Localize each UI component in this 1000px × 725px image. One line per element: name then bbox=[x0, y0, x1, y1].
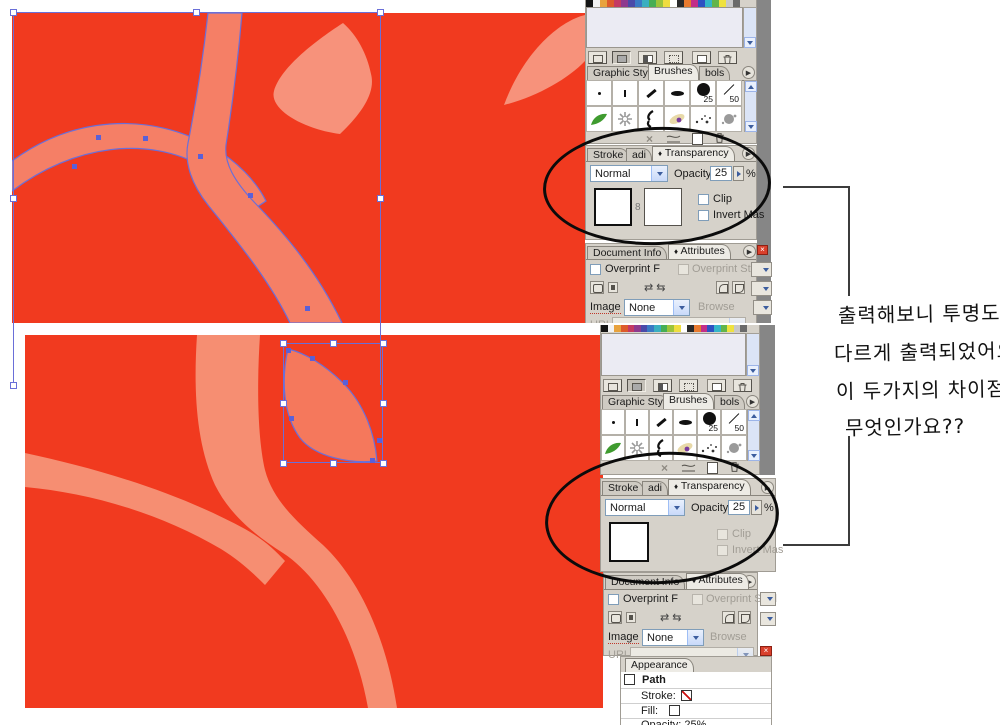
ellipse-icon bbox=[679, 420, 692, 425]
swatches-strip[interactable] bbox=[601, 325, 747, 333]
appearance-item-label: Path bbox=[642, 674, 666, 686]
close-button-fragment[interactable]: × bbox=[757, 245, 768, 255]
opacity-value-label: Opacity: 25% bbox=[641, 719, 706, 725]
anchor-point[interactable] bbox=[248, 193, 253, 198]
color-swatch[interactable] bbox=[621, 325, 628, 332]
fill-label: Fill: bbox=[641, 705, 658, 717]
image-map-value: None bbox=[629, 302, 655, 314]
selection-handle[interactable] bbox=[280, 460, 287, 467]
appearance-panel: Appearance Path Stroke: Fill: Opacity: 2… bbox=[620, 656, 772, 725]
brush-grid: 25 50 bbox=[586, 80, 744, 132]
brush-splat[interactable] bbox=[716, 106, 742, 132]
color-swatch[interactable] bbox=[705, 0, 712, 7]
panel-button-5[interactable] bbox=[707, 379, 726, 392]
corner-button-2[interactable] bbox=[738, 611, 751, 624]
selection-handle[interactable] bbox=[380, 400, 387, 407]
selection-handle[interactable] bbox=[380, 340, 387, 347]
scroll-down-button[interactable] bbox=[744, 37, 756, 48]
panel-button-5[interactable] bbox=[692, 51, 711, 64]
color-swatch[interactable] bbox=[661, 325, 668, 332]
corner-button-1[interactable] bbox=[716, 281, 729, 294]
appearance-fill-row[interactable]: Fill: bbox=[621, 704, 771, 719]
browser-button[interactable]: Browse bbox=[698, 301, 735, 313]
color-swatch[interactable] bbox=[714, 325, 721, 332]
brush-dash[interactable] bbox=[612, 80, 638, 106]
styles-list[interactable] bbox=[601, 333, 746, 376]
color-swatch[interactable] bbox=[674, 325, 681, 332]
brush-ellipse[interactable] bbox=[673, 409, 697, 435]
brush-scrollbar[interactable] bbox=[744, 80, 757, 132]
dropdown-button[interactable] bbox=[673, 300, 689, 315]
image-map-select[interactable]: None bbox=[624, 299, 690, 316]
image-map-value: None bbox=[647, 632, 673, 644]
brushes-tabbar: Graphic Sty Brushes bols ▶ bbox=[601, 393, 761, 410]
diagonal-stroke-icon bbox=[656, 417, 666, 426]
splat-icon bbox=[720, 111, 738, 127]
brush-ellipse[interactable] bbox=[664, 80, 690, 106]
new-item-icon bbox=[697, 55, 707, 63]
annotation-line-2: 다르게 출력되었어요.. bbox=[834, 334, 1000, 366]
appearance-stroke-row[interactable]: Stroke: bbox=[621, 689, 771, 704]
style-icon bbox=[617, 55, 627, 63]
thin-stroke-icon bbox=[724, 84, 735, 95]
color-swatch[interactable] bbox=[726, 0, 733, 7]
leaf-selection-box[interactable] bbox=[283, 343, 383, 463]
overprint-fill-checkbox[interactable] bbox=[590, 264, 601, 275]
tab-graphic-styles[interactable]: Graphic Sty bbox=[602, 395, 669, 409]
brush-scatter[interactable] bbox=[690, 106, 716, 132]
color-swatch[interactable] bbox=[593, 0, 600, 7]
arrow-down-icon bbox=[751, 454, 757, 458]
color-swatch[interactable] bbox=[649, 0, 656, 7]
anchor-point[interactable] bbox=[289, 416, 294, 421]
tab-document-info[interactable]: Document Info bbox=[587, 246, 667, 259]
color-swatch[interactable] bbox=[601, 325, 608, 332]
scroll-up-button[interactable] bbox=[748, 410, 760, 421]
annotation-line-4: 무엇인가요?? bbox=[845, 410, 966, 441]
color-swatch[interactable] bbox=[733, 0, 740, 7]
panel-button-6[interactable] bbox=[733, 379, 752, 392]
anchor-point[interactable] bbox=[310, 356, 315, 361]
palette-fragment bbox=[751, 262, 772, 277]
browser-button[interactable]: Browse bbox=[710, 631, 747, 643]
scroll-down-button[interactable] bbox=[748, 450, 760, 461]
half-icon bbox=[658, 383, 668, 391]
chevron-down-icon bbox=[767, 617, 773, 621]
color-swatch[interactable] bbox=[635, 0, 642, 7]
color-swatch[interactable] bbox=[667, 325, 674, 332]
panel-button-3[interactable] bbox=[638, 51, 657, 64]
color-swatch[interactable] bbox=[719, 0, 726, 7]
grid-icon bbox=[669, 55, 679, 63]
show-center-button[interactable] bbox=[608, 611, 622, 624]
brushes-tabbar: Graphic Sty Brushes bols ▶ bbox=[586, 64, 758, 81]
panel-button-1[interactable] bbox=[603, 379, 622, 392]
close-button-fragment[interactable]: × bbox=[760, 646, 772, 656]
tab-attributes[interactable]: ♦ Attributes bbox=[668, 244, 731, 259]
anchor-point[interactable] bbox=[96, 135, 101, 140]
color-swatch[interactable] bbox=[600, 0, 607, 7]
anchor-point[interactable] bbox=[370, 458, 375, 463]
color-swatch[interactable] bbox=[684, 0, 691, 7]
color-swatch[interactable] bbox=[607, 0, 614, 7]
anchor-point[interactable] bbox=[377, 438, 382, 443]
color-swatch[interactable] bbox=[740, 325, 747, 332]
arrow-down-icon bbox=[747, 41, 753, 45]
palette-fragment bbox=[760, 612, 776, 626]
selection-handle[interactable] bbox=[330, 340, 337, 347]
arrow-down-icon bbox=[750, 369, 756, 373]
overprint-stroke-checkbox[interactable] bbox=[692, 594, 703, 605]
color-swatch[interactable] bbox=[634, 325, 641, 332]
color-swatch[interactable] bbox=[608, 325, 615, 332]
color-swatch[interactable] bbox=[642, 0, 649, 7]
arrow-up-icon bbox=[748, 85, 754, 89]
palette-fragment bbox=[760, 592, 776, 606]
brush-dash[interactable] bbox=[625, 409, 649, 435]
arrow-down-icon bbox=[748, 125, 754, 129]
dot-icon bbox=[612, 421, 615, 424]
flyout-icon: ▶ bbox=[750, 398, 755, 406]
brush-size-label: 25 bbox=[704, 94, 713, 104]
bracket-vertical-upper bbox=[848, 186, 850, 296]
new-item-icon bbox=[712, 383, 722, 391]
show-center-button[interactable] bbox=[590, 281, 604, 294]
charcoal-icon bbox=[644, 110, 658, 128]
list-scrollbar[interactable] bbox=[746, 333, 760, 376]
selection-handle[interactable] bbox=[380, 460, 387, 467]
color-swatch[interactable] bbox=[647, 325, 654, 332]
selection-handle[interactable] bbox=[10, 382, 17, 389]
color-swatch[interactable] bbox=[721, 325, 728, 332]
chevron-down-icon bbox=[693, 636, 699, 640]
panel-menu-button[interactable]: ▶ bbox=[746, 395, 759, 408]
grid-icon bbox=[684, 383, 694, 391]
dash-icon bbox=[624, 90, 626, 97]
color-swatch[interactable] bbox=[654, 325, 661, 332]
stroke-label: Stroke: bbox=[641, 690, 676, 702]
swatches-strip[interactable] bbox=[586, 0, 744, 7]
tab-appearance[interactable]: Appearance bbox=[625, 658, 694, 672]
corner-button-1[interactable] bbox=[722, 611, 735, 624]
dropdown-button[interactable] bbox=[687, 630, 703, 645]
dot-icon bbox=[598, 92, 601, 95]
artwork-top bbox=[12, 13, 585, 323]
color-swatch[interactable] bbox=[628, 0, 635, 7]
attributes-tabbar: Document Info ♦ Attributes ▶ bbox=[586, 244, 756, 260]
anchor-point[interactable] bbox=[72, 164, 77, 169]
bracket-bottom-tick bbox=[783, 544, 849, 546]
image-map-select[interactable]: None bbox=[642, 629, 704, 646]
chevron-down-icon bbox=[763, 306, 769, 310]
chevron-down-icon bbox=[763, 287, 769, 291]
path-swatch bbox=[624, 674, 635, 685]
layers-icon bbox=[608, 383, 618, 391]
panel-button-2[interactable] bbox=[612, 51, 631, 64]
hide-center-button[interactable] bbox=[626, 612, 636, 623]
selection-handle[interactable] bbox=[377, 195, 384, 202]
appearance-tabbar: Appearance bbox=[621, 657, 771, 673]
tab-brushes[interactable]: Brushes bbox=[663, 393, 714, 409]
panel-button-3[interactable] bbox=[653, 379, 672, 392]
brush-50pt[interactable]: 50 bbox=[721, 409, 747, 435]
panel-button-1[interactable] bbox=[588, 51, 607, 64]
selection-handle[interactable] bbox=[10, 195, 17, 202]
arrow-up-icon bbox=[751, 414, 757, 418]
attributes-panel-top: Document Info ♦ Attributes ▶ Overprint F… bbox=[585, 243, 757, 323]
selection-handle[interactable] bbox=[10, 9, 17, 16]
corner-button-2[interactable] bbox=[732, 281, 745, 294]
url-select[interactable] bbox=[612, 317, 746, 323]
color-swatch[interactable] bbox=[663, 0, 670, 7]
overprint-fill-label: Overprint F bbox=[605, 263, 660, 275]
style-icon bbox=[632, 383, 642, 391]
layers-icon bbox=[593, 55, 603, 63]
flyout-icon: ▶ bbox=[747, 248, 752, 256]
anchor-point[interactable] bbox=[286, 348, 291, 353]
brush-50pt[interactable]: 50 bbox=[716, 80, 742, 106]
brush-scrollbar[interactable] bbox=[747, 409, 760, 461]
attributes-panel-bottom: Document Info ♦ Attributes ▶ Overprint F… bbox=[603, 572, 758, 656]
tab-brushes[interactable]: Brushes bbox=[648, 64, 699, 80]
brush-size-label: 25 bbox=[709, 423, 718, 433]
selection-handle[interactable] bbox=[280, 400, 287, 407]
annotation-line-1: 출력해보니 투명도가 bbox=[838, 296, 1000, 328]
bracket-vertical-lower bbox=[848, 436, 850, 546]
stroke-none-swatch bbox=[681, 690, 692, 701]
color-swatch[interactable] bbox=[677, 0, 684, 7]
brush-dot[interactable] bbox=[586, 80, 612, 106]
chevron-down-icon bbox=[763, 268, 769, 272]
hide-center-button[interactable] bbox=[608, 282, 618, 293]
panel-menu-button[interactable]: ▶ bbox=[742, 66, 755, 79]
panel-menu-button[interactable]: ▶ bbox=[743, 245, 756, 258]
brush-25pt[interactable]: 25 bbox=[697, 409, 721, 435]
panel-button-2[interactable] bbox=[627, 379, 646, 392]
appearance-opacity-row[interactable]: Opacity: 25% bbox=[621, 719, 771, 725]
color-swatch[interactable] bbox=[670, 0, 677, 7]
screenshot-canvas: Graphic Sty Brushes bols ▶ 25 50 × bbox=[0, 0, 1000, 725]
tab-symbols[interactable]: bols bbox=[714, 395, 745, 409]
trash-icon bbox=[737, 382, 748, 393]
color-swatch[interactable] bbox=[698, 0, 705, 7]
leaf-icon bbox=[604, 441, 622, 455]
feather-icon bbox=[667, 111, 687, 127]
reverse-path-icons[interactable]: ⇄ ⇆ bbox=[644, 281, 666, 294]
scatter-icon bbox=[694, 112, 712, 126]
image-map-label: Image bbox=[590, 301, 621, 314]
selection-handle[interactable] bbox=[280, 340, 287, 347]
overprint-stroke-label: Overprint Strol bbox=[692, 263, 757, 275]
overprint-fill-checkbox[interactable] bbox=[608, 594, 619, 605]
color-swatch[interactable] bbox=[614, 0, 621, 7]
anchor-point[interactable] bbox=[343, 380, 348, 385]
panel-button-4[interactable] bbox=[679, 379, 698, 392]
dropdown-button[interactable] bbox=[729, 318, 745, 323]
brush-size-label: 50 bbox=[730, 94, 739, 104]
panel-button-6[interactable] bbox=[718, 51, 737, 64]
appearance-item-row[interactable]: Path bbox=[621, 672, 771, 689]
color-swatch[interactable] bbox=[641, 325, 648, 332]
anchor-point[interactable] bbox=[305, 306, 310, 311]
color-swatch[interactable] bbox=[694, 325, 701, 332]
color-swatch[interactable] bbox=[734, 325, 741, 332]
overprint-stroke-checkbox[interactable] bbox=[678, 264, 689, 275]
brush-splat[interactable] bbox=[721, 435, 747, 461]
fill-swatch bbox=[669, 705, 680, 716]
color-swatch[interactable] bbox=[681, 325, 688, 332]
anchor-point[interactable] bbox=[143, 136, 148, 141]
url-label: URL bbox=[590, 319, 612, 323]
color-swatch[interactable] bbox=[691, 0, 698, 7]
ellipse-icon bbox=[671, 91, 684, 96]
styles-list[interactable] bbox=[586, 7, 743, 48]
diagonal-stroke-icon bbox=[646, 88, 656, 97]
brush-25pt[interactable]: 25 bbox=[690, 80, 716, 106]
overprint-fill-label: Overprint F bbox=[623, 593, 678, 605]
brush-leaf[interactable] bbox=[586, 106, 612, 132]
flyout-icon: ▶ bbox=[746, 69, 751, 77]
color-swatch[interactable] bbox=[614, 325, 621, 332]
color-swatch[interactable] bbox=[628, 325, 635, 332]
selection-handle[interactable] bbox=[193, 9, 200, 16]
image-map-label: Image bbox=[608, 631, 639, 644]
half-icon bbox=[643, 55, 653, 63]
scroll-down-button[interactable] bbox=[747, 365, 759, 376]
anchor-point[interactable] bbox=[198, 154, 203, 159]
color-swatch[interactable] bbox=[701, 325, 708, 332]
color-swatch[interactable] bbox=[586, 0, 593, 7]
color-swatch[interactable] bbox=[707, 325, 714, 332]
app-background-strip-bottom bbox=[760, 325, 775, 475]
splat-icon bbox=[725, 440, 743, 456]
dash-icon bbox=[636, 419, 638, 426]
selection-handle[interactable] bbox=[377, 9, 384, 16]
color-swatch[interactable] bbox=[687, 325, 694, 332]
color-swatch[interactable] bbox=[712, 0, 719, 7]
color-swatch[interactable] bbox=[656, 0, 663, 7]
list-scrollbar[interactable] bbox=[743, 7, 757, 48]
scatter-icon bbox=[700, 441, 718, 455]
color-swatch[interactable] bbox=[727, 325, 734, 332]
tab-symbols[interactable]: bols bbox=[699, 66, 730, 80]
color-swatch[interactable] bbox=[621, 0, 628, 7]
star-icon bbox=[617, 111, 633, 127]
brush-stroke[interactable] bbox=[638, 80, 664, 106]
scroll-down-button[interactable] bbox=[745, 121, 757, 132]
annotation-line-3: 이 두가지의 차이점이 bbox=[836, 372, 1000, 404]
leaf-icon bbox=[590, 112, 608, 126]
scroll-up-button[interactable] bbox=[745, 81, 757, 92]
thin-stroke-icon bbox=[729, 413, 740, 424]
collapse-icon: ♦ bbox=[674, 247, 678, 256]
palette-fragment bbox=[753, 300, 772, 315]
panel-button-4[interactable] bbox=[664, 51, 683, 64]
chevron-down-icon bbox=[679, 306, 685, 310]
chevron-down-icon bbox=[767, 597, 773, 601]
tab-graphic-styles[interactable]: Graphic Sty bbox=[587, 66, 654, 80]
selection-handle[interactable] bbox=[330, 460, 337, 467]
palette-fragment bbox=[751, 281, 772, 296]
brush-dot[interactable] bbox=[601, 409, 625, 435]
palette-group-top: Graphic Sty Brushes bols ▶ 25 50 × bbox=[585, 0, 757, 144]
bracket-top-tick bbox=[783, 186, 849, 188]
reverse-path-icons[interactable]: ⇄ ⇆ bbox=[660, 611, 682, 624]
brush-size-label: 50 bbox=[735, 423, 744, 433]
brush-stroke[interactable] bbox=[649, 409, 673, 435]
